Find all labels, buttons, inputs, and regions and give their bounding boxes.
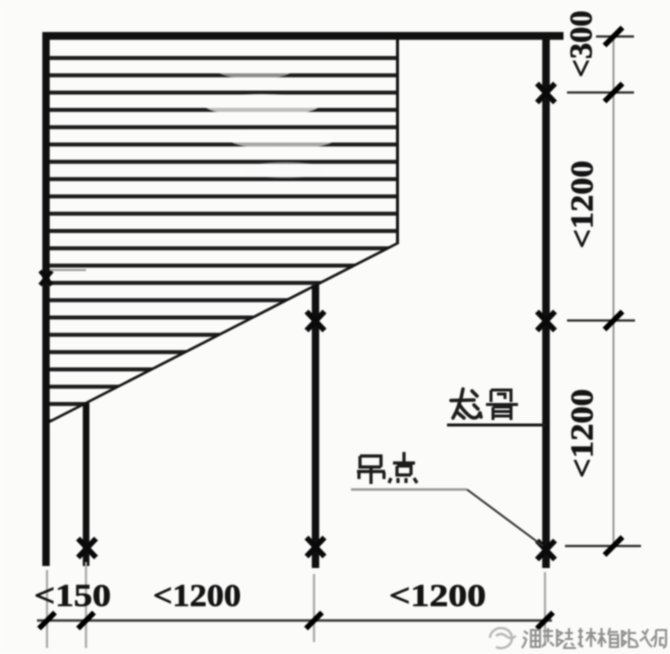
svg-text:<1200: <1200	[153, 577, 241, 613]
svg-text:<1200: <1200	[564, 389, 600, 478]
svg-text:<150: <150	[34, 577, 111, 613]
svg-text:<1200: <1200	[564, 161, 600, 249]
svg-text:<1200: <1200	[389, 577, 486, 613]
svg-text:<300: <300	[563, 11, 599, 78]
